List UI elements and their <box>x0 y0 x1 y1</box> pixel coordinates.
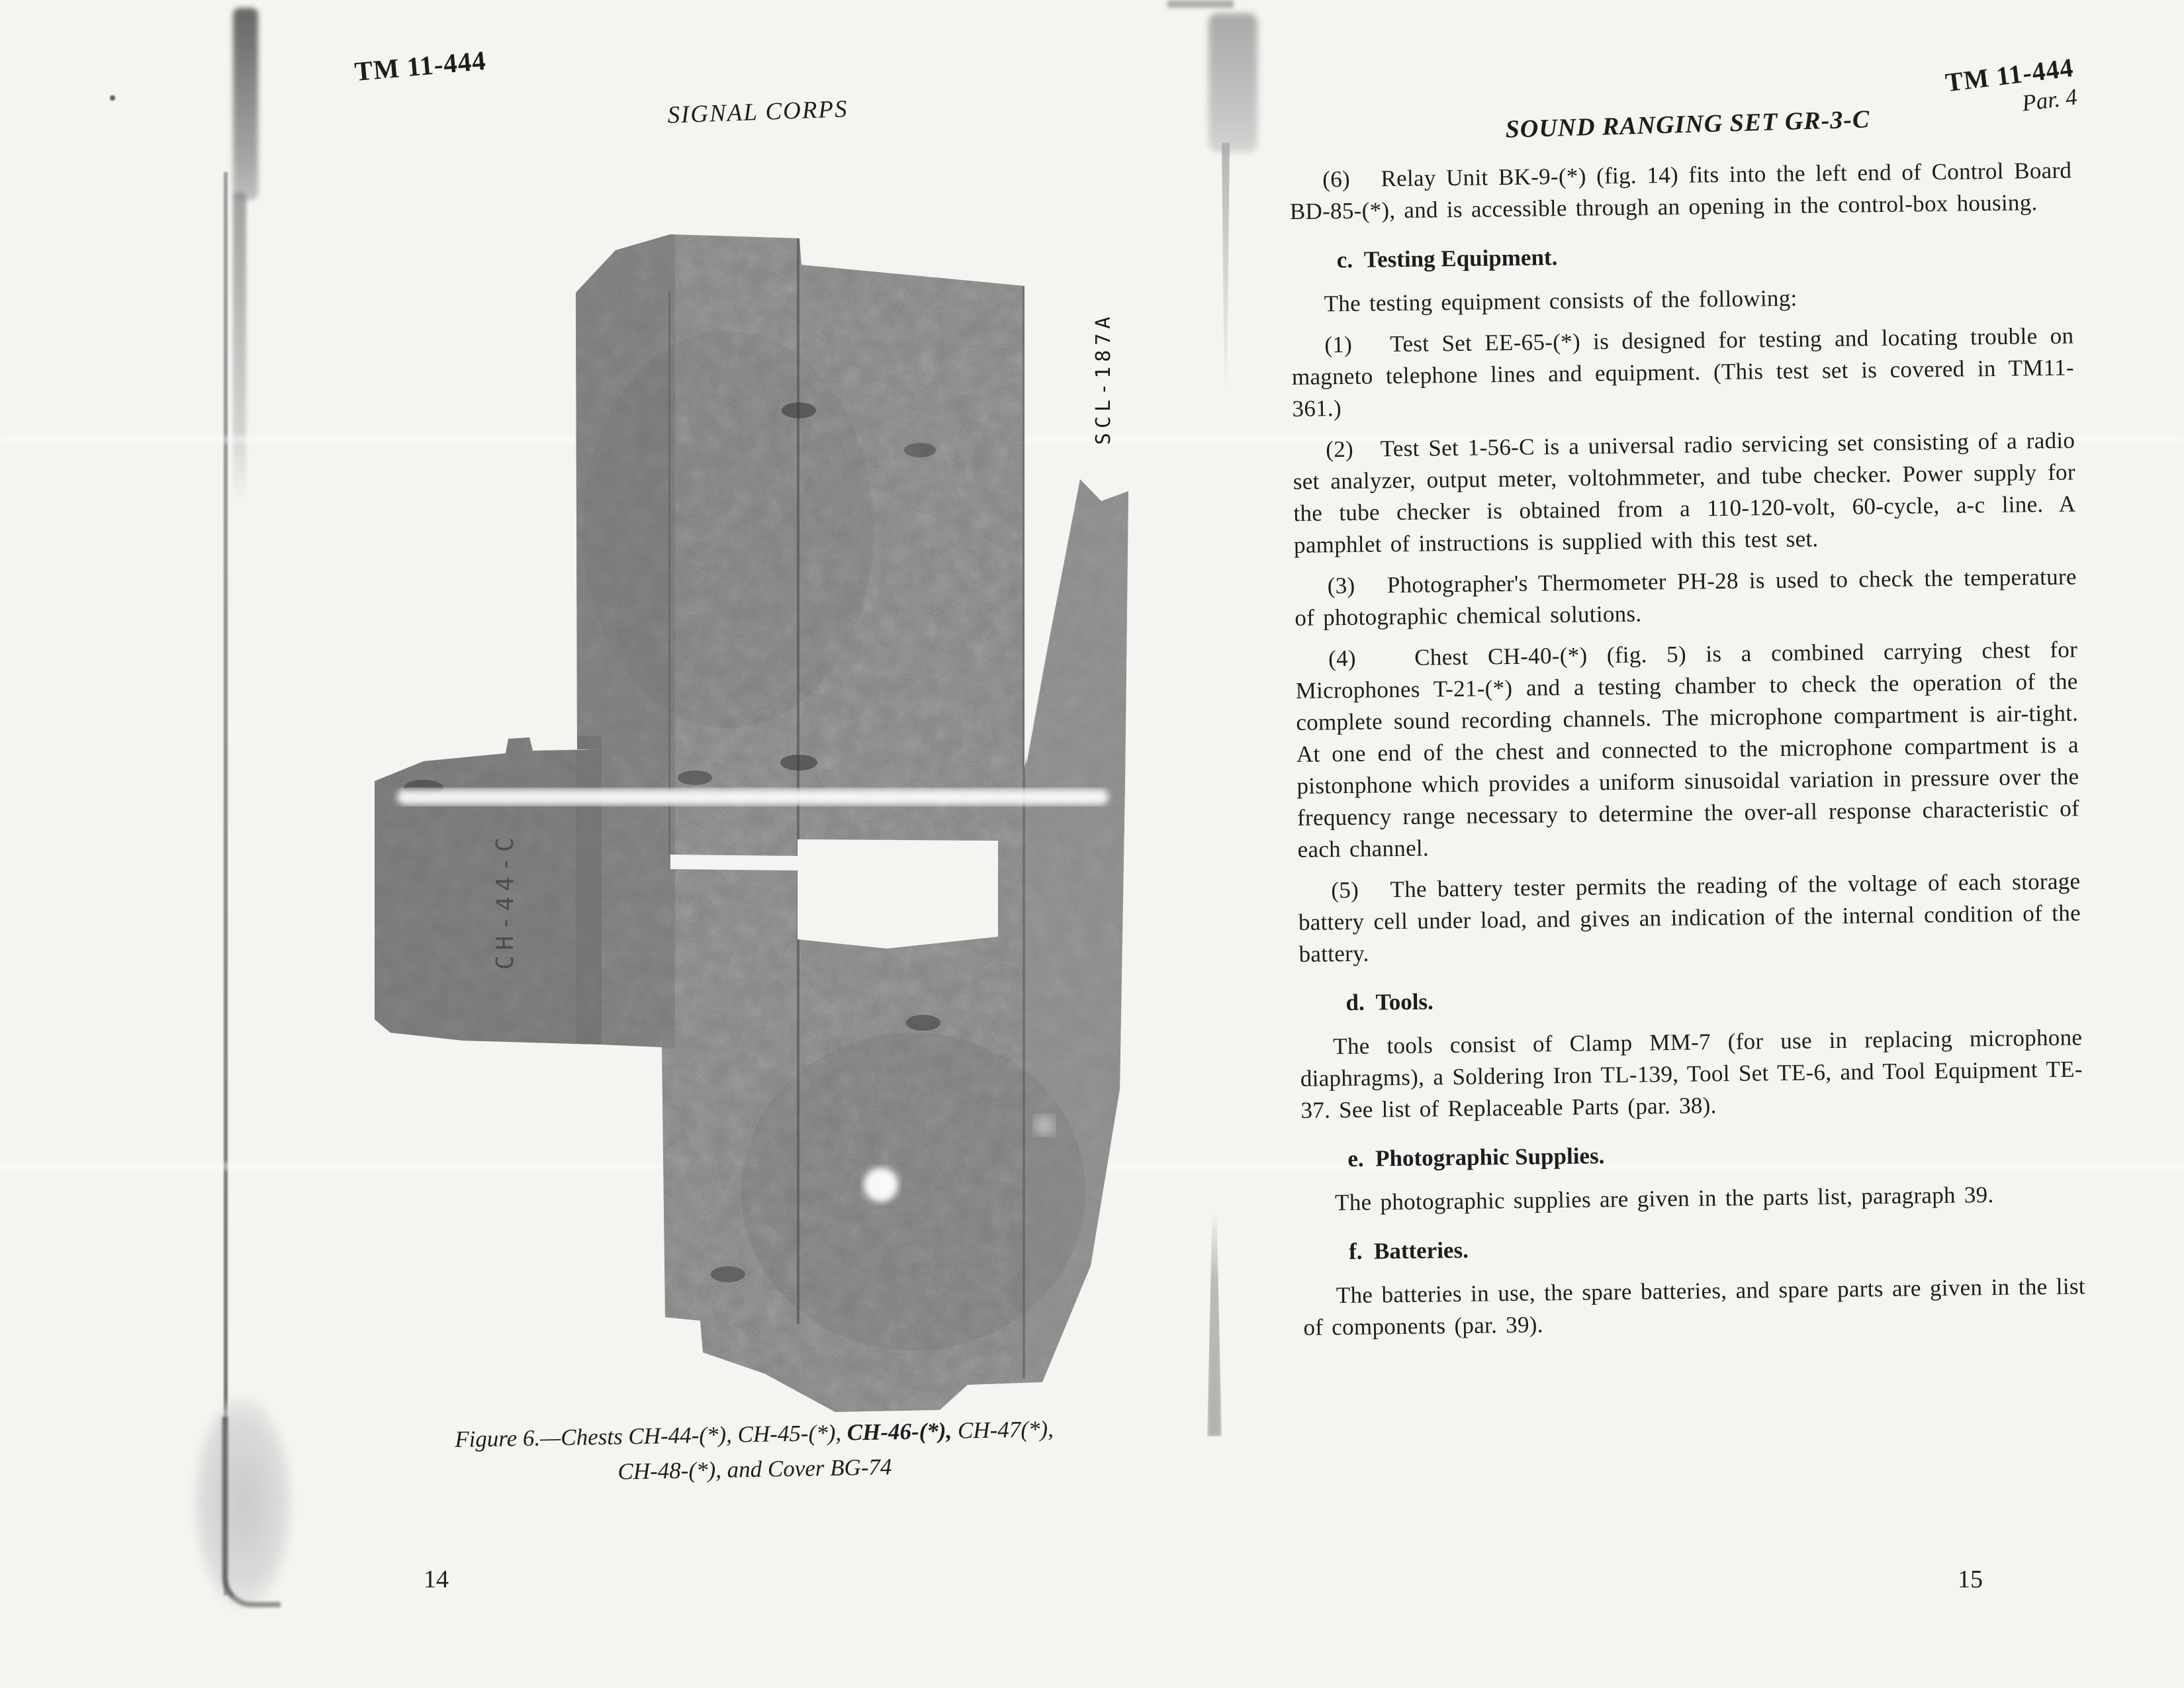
paragraph-5-battery-tester: (5) The battery tester permits the readi… <box>1298 865 2081 970</box>
scan-gutter-smudge-top <box>1208 13 1257 152</box>
scan-glare-dot <box>864 1168 898 1202</box>
scan-glare-streak <box>397 789 1109 805</box>
scan-gutter-streak-bottom <box>1207 1211 1222 1436</box>
figure-caption: Figure 6.—Chests CH-44-(*), CH-45-(*), C… <box>343 1409 1165 1494</box>
heading-e-photographic-supplies: e. Photographic Supplies. <box>1347 1134 2084 1175</box>
scan-binding-line-left <box>224 172 228 1595</box>
scan-speck <box>110 95 115 101</box>
scan-smear-top-edge <box>1167 0 1234 8</box>
figure-6-photo: CH-44-C <box>318 199 1178 1423</box>
scan-streak-top-left <box>233 8 258 200</box>
page-number-left: 14 <box>424 1565 449 1594</box>
left-page-header-signal-corps: SIGNAL CORPS <box>628 93 887 131</box>
paragraph-6: (6) Relay Unit BK-9-(*) (fig. 14) fits i… <box>1289 155 2072 228</box>
paragraph-tools: The tools consist of Clamp MM-7 (for use… <box>1300 1021 2083 1126</box>
scan-streak-mid-left <box>233 192 246 503</box>
heading-d-tools: d. Tools. <box>1345 978 2082 1019</box>
right-page-text-column: (6) Relay Unit BK-9-(*) (fig. 14) fits i… <box>1289 155 2086 1353</box>
paragraph-2-test-set-156c: (2) Test Set 1-56-C is a universal radio… <box>1293 425 2076 561</box>
paragraph-3-thermometer: (3) Photographer's Thermometer PH-28 is … <box>1295 561 2077 634</box>
paragraph-photographic-supplies: The photographic supplies are given in t… <box>1302 1178 2084 1219</box>
left-page-manual-number: TM 11-444 <box>353 44 488 87</box>
scan-hook-bottom-left <box>222 1417 281 1607</box>
heading-f-batteries: f. Batteries. <box>1349 1227 2085 1268</box>
page-number-right: 15 <box>1958 1565 1983 1594</box>
photo-id-label: SCL-187A <box>1092 259 1115 445</box>
paragraph-batteries: The batteries in use, the spare batterie… <box>1303 1270 2086 1343</box>
paragraph-testing-intro: The testing equipment consists of the fo… <box>1291 279 2073 320</box>
paragraph-4-chest-ch40: (4) Chest CH-40-(*) (fig. 5) is a combin… <box>1295 634 2080 866</box>
right-page-title: SOUND RANGING SET GR-3-C <box>1416 103 1960 147</box>
scan-gutter-tail-top <box>1219 142 1232 394</box>
heading-c-testing-equipment: c. Testing Equipment. <box>1336 236 2073 277</box>
scanned-manual-spread: { "colors": { "page_bg": "#f5f4f0", "ink… <box>0 0 2184 1688</box>
chest-stencil-text: CH-44-C <box>492 832 519 970</box>
paragraph-1-test-set-ee65: (1) Test Set EE-65-(*) is designed for t… <box>1291 320 2075 425</box>
